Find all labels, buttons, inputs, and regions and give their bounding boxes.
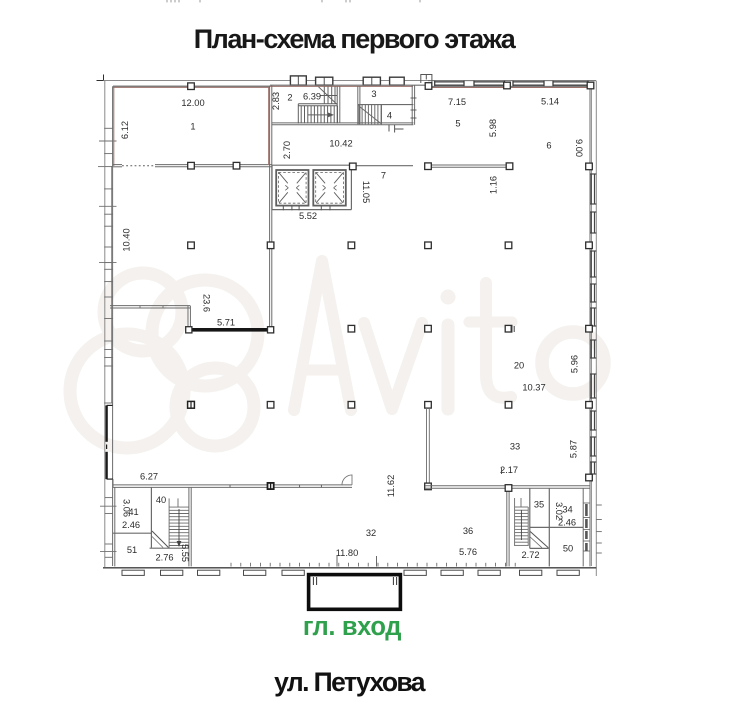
svg-text:10.37: 10.37: [522, 383, 545, 393]
svg-text:5.14: 5.14: [541, 97, 559, 107]
svg-text:5.96: 5.96: [570, 355, 580, 373]
svg-text:5.55: 5.55: [180, 544, 190, 562]
svg-text:5.71: 5.71: [217, 318, 235, 328]
svg-text:23.6: 23.6: [202, 294, 212, 312]
svg-text:1.16: 1.16: [489, 176, 499, 194]
svg-text:41: 41: [128, 507, 138, 517]
svg-text:3: 3: [371, 89, 376, 99]
svg-text:5.76: 5.76: [459, 547, 477, 557]
svg-text:ул. Петухова: ул. Петухова: [274, 667, 426, 697]
svg-text:7.15: 7.15: [448, 97, 466, 107]
svg-text:План-схема первого этажа: План-схема первого этажа: [194, 24, 517, 54]
svg-text:33: 33: [510, 442, 520, 452]
svg-text:5.98: 5.98: [488, 119, 498, 137]
svg-text:51: 51: [127, 545, 137, 555]
svg-text:6.27: 6.27: [140, 472, 158, 482]
svg-text:1: 1: [190, 122, 195, 132]
svg-text:36: 36: [463, 526, 473, 536]
svg-text:6: 6: [546, 141, 551, 151]
svg-text:2.46: 2.46: [558, 518, 576, 528]
svg-text:гл. вход: гл. вход: [303, 613, 401, 641]
svg-text:2.76: 2.76: [155, 553, 173, 563]
svg-text:11.05: 11.05: [361, 181, 371, 204]
svg-text:12.00: 12.00: [181, 98, 204, 108]
svg-text:11.62: 11.62: [386, 475, 396, 498]
svg-text:2.83: 2.83: [271, 92, 281, 110]
svg-text:2.72: 2.72: [521, 550, 539, 560]
svg-text:5: 5: [455, 119, 460, 129]
svg-text:32: 32: [366, 528, 376, 538]
svg-text:2: 2: [287, 93, 292, 103]
svg-text:6.12: 6.12: [120, 121, 130, 139]
svg-text:9.00: 9.00: [574, 139, 584, 157]
svg-text:5.52: 5.52: [299, 211, 317, 221]
svg-text:5.87: 5.87: [569, 440, 579, 458]
svg-text:50: 50: [563, 544, 573, 554]
svg-text:2.17: 2.17: [500, 465, 518, 475]
svg-text:7: 7: [381, 171, 386, 181]
svg-text:10.42: 10.42: [329, 139, 352, 149]
svg-text:34: 34: [562, 505, 572, 515]
svg-text:2.70: 2.70: [282, 141, 292, 159]
svg-text:40: 40: [156, 495, 166, 505]
svg-text:20: 20: [514, 361, 524, 371]
svg-text:4: 4: [387, 111, 392, 121]
svg-text:2.46: 2.46: [122, 520, 140, 530]
svg-text:6.39: 6.39: [303, 92, 321, 102]
svg-text:11.80: 11.80: [336, 548, 359, 558]
svg-text:35: 35: [534, 500, 544, 510]
svg-text:10.40: 10.40: [122, 228, 132, 251]
